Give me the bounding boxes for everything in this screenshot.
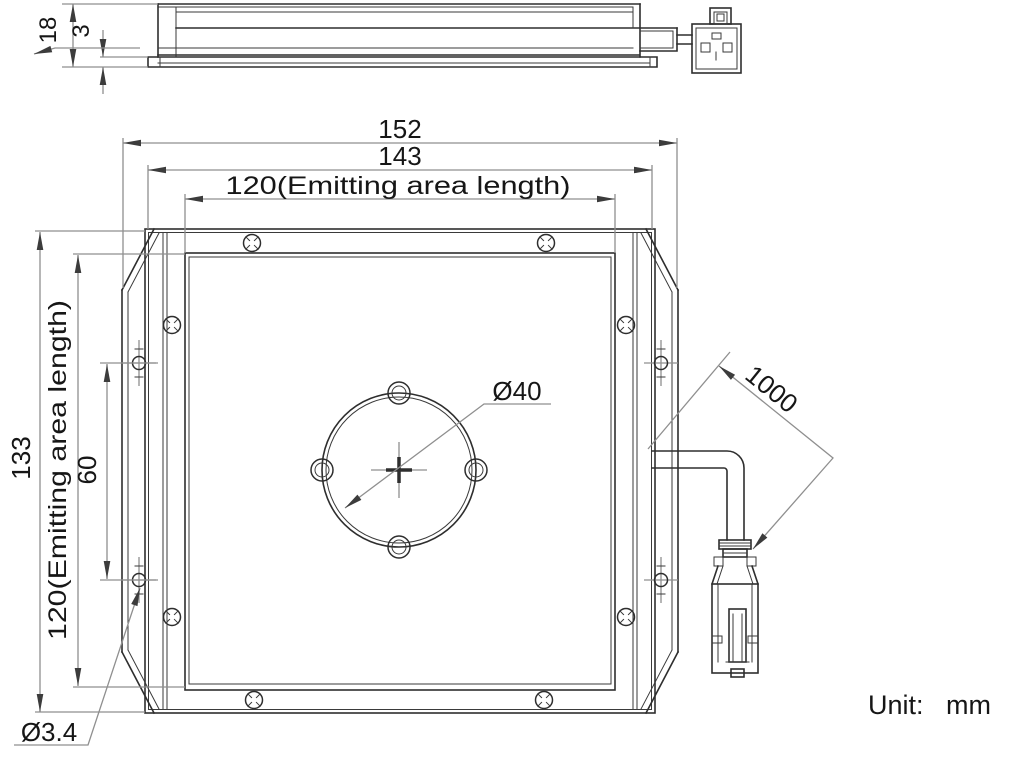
dim-mount-hole-label: Ø3.4	[21, 717, 77, 747]
side-view	[148, 4, 741, 73]
dim-cable-length-label: 1000	[740, 359, 804, 419]
dim-overall-width-label: 152	[378, 114, 421, 144]
dim-center-hole-label: Ø40	[492, 376, 541, 406]
dim-emitting-width-label: 120(Emitting area length)	[226, 172, 571, 200]
dim-frame-width-label: 143	[378, 141, 421, 171]
mount-hole	[644, 557, 678, 603]
dim-thickness-label: 18	[35, 17, 62, 44]
technical-drawing: 18 3	[0, 0, 1024, 763]
unit-label: Unit:	[868, 690, 924, 720]
dim-hole-spacing-label: 60	[72, 456, 102, 485]
screw-head	[618, 609, 635, 626]
connector-side	[692, 8, 741, 73]
side-view-mounting-plate	[148, 57, 657, 67]
side-view-body	[158, 4, 677, 57]
screw-head	[618, 317, 635, 334]
screw-head	[244, 235, 261, 252]
side-view-cable-boot	[640, 28, 677, 51]
front-cable	[652, 451, 744, 540]
screw-head	[538, 235, 555, 252]
unit-value: mm	[946, 690, 991, 720]
screw-head	[246, 692, 263, 709]
dim-overall-height-label: 133	[6, 436, 36, 479]
dim-emitting-height-label: 120(Emitting area length)	[44, 300, 72, 640]
screw-head	[536, 692, 553, 709]
dim-plate-thickness-label: 3	[68, 24, 95, 37]
screw-head	[164, 317, 181, 334]
technical-drawing-page: 18 3	[0, 0, 1024, 763]
connector-front	[712, 540, 758, 677]
center-hole-group	[311, 382, 487, 558]
front-view-dimensions: 152 143 120(Emitting area length) 133 12…	[6, 114, 833, 747]
front-view	[122, 229, 758, 713]
mount-hole	[644, 340, 678, 386]
screw-head	[164, 609, 181, 626]
unit-note: Unit: mm	[868, 690, 991, 720]
side-view-dimensions: 18 3	[34, 4, 158, 94]
side-view-cable	[677, 35, 692, 44]
